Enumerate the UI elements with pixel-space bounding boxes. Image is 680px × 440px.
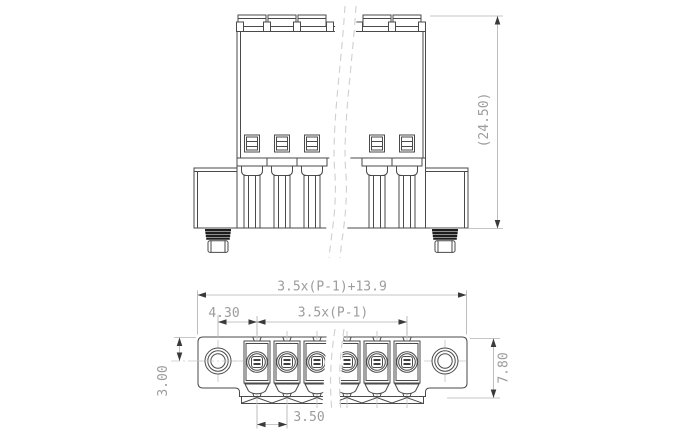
terminal-position [244,331,270,411]
terminal-block-technical-drawing: (24.50) [0,0,680,440]
dim-hole-to-pole: 4.30 [208,306,257,325]
latch-tab [419,22,426,32]
dim-edge-to-hole: 3.00 [156,338,196,397]
panel-screw-left [205,230,231,252]
panel-screw-right [432,230,458,252]
latch-tab [356,22,363,32]
terminal-position [394,331,420,411]
dim-overall-width-label: 3.5x(P-1)+13.9 [277,280,387,295]
front-view: (24.50) [194,6,503,258]
latch-tab [294,22,301,32]
dim-height-label: (24.50) [477,93,492,148]
latch-tab [264,22,271,32]
latch-tab [389,22,396,32]
dim-pitch-label: 3.50 [293,410,324,425]
latch-tab [237,22,244,32]
dim-edge-to-hole-label: 3.00 [156,365,171,396]
mounting-flange-right [426,168,469,228]
mounting-flange-left [194,168,237,228]
dim-hole-to-pole-label: 4.30 [208,306,239,321]
terminal-position [364,331,390,411]
drawing-canvas: (24.50) [0,0,680,440]
bottom-view: 3.5x(P-1)+13.9 3.5x(P-1) 4.30 3.00 [156,280,512,429]
dim-pole-span-label: 3.5x(P-1) [298,306,368,321]
dim-depth-label: 7.80 [497,352,512,383]
terminal-position [274,331,300,411]
dim-pitch: 3.50 [257,406,325,429]
latch-tab [327,22,334,32]
